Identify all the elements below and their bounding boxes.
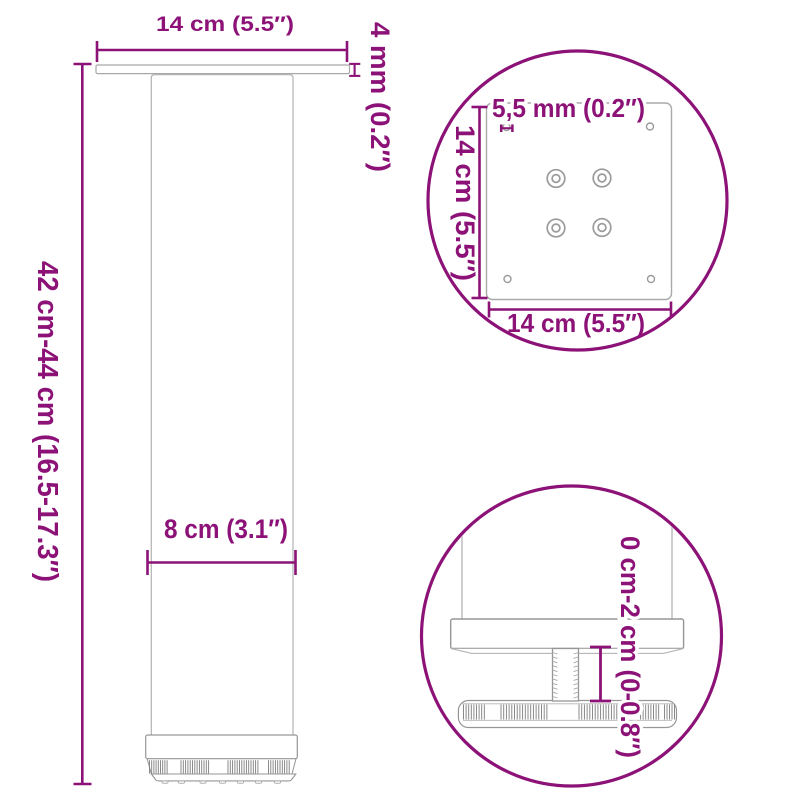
- svg-text:4 mm (0.2″): 4 mm (0.2″): [365, 22, 395, 172]
- svg-text:14 cm (5.5″): 14 cm (5.5″): [156, 12, 294, 36]
- svg-text:8 cm (3.1″): 8 cm (3.1″): [164, 514, 288, 544]
- svg-text:14 cm (5.5″): 14 cm (5.5″): [507, 308, 645, 338]
- svg-text:5,5 mm (0.2″): 5,5 mm (0.2″): [492, 93, 645, 123]
- svg-text:0 cm-2 cm (0-0.8″): 0 cm-2 cm (0-0.8″): [615, 536, 645, 758]
- svg-text:42 cm-44 cm (16.5-17.3″): 42 cm-44 cm (16.5-17.3″): [31, 261, 63, 582]
- svg-text:14 cm (5.5″): 14 cm (5.5″): [450, 125, 480, 281]
